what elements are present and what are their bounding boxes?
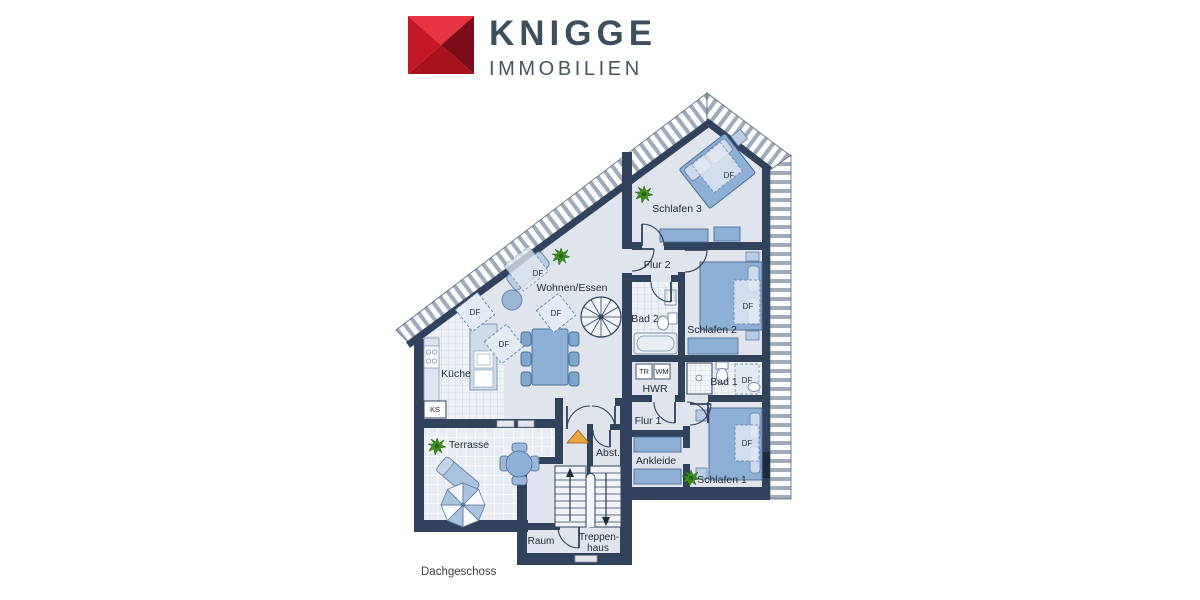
terrace-table — [506, 451, 532, 477]
nightstand — [746, 331, 759, 340]
dining-set — [521, 329, 579, 386]
wardrobe — [688, 338, 738, 354]
room-label-raum: Raum — [528, 536, 555, 547]
sideboard — [714, 227, 740, 241]
room-label-wohnen-essen: Wohnen/Essen — [536, 282, 607, 294]
page: { "logo": { "brand": "KNIGGE", "sub": "I… — [0, 0, 1200, 600]
room-label-schlafen3: Schlafen 3 — [652, 203, 702, 215]
room-label-flur2: Flur 2 — [644, 259, 671, 271]
room-label-treppenhaus-2: haus — [587, 543, 609, 554]
room-label-abstellraum: Abst. — [596, 447, 620, 459]
stove — [424, 346, 439, 368]
floor-caption: Dachgeschoss — [421, 566, 496, 578]
staircase — [555, 466, 621, 527]
df-label: DF — [742, 439, 753, 448]
room-label-hwr: HWR — [642, 383, 667, 395]
wall-annotation — [762, 452, 770, 478]
shower — [687, 363, 712, 394]
sideboard — [660, 229, 708, 242]
room-label-flur1: Flur 1 — [635, 415, 662, 427]
floor-plan: Schlafen 3 Flur 2 Wohnen/Essen Bad 2 Sch… — [0, 0, 1200, 600]
side-table — [502, 290, 522, 310]
window — [497, 421, 514, 428]
df-label: DF — [743, 302, 754, 311]
df-label: DF — [470, 308, 481, 317]
room-label-bad2: Bad 2 — [631, 313, 659, 325]
wardrobe — [634, 469, 681, 484]
df-label: DF — [724, 171, 735, 180]
dining-table — [532, 329, 568, 385]
room-label-ankleide: Ankleide — [636, 455, 676, 467]
room-label-kueche: Küche — [441, 368, 471, 380]
window — [518, 421, 534, 428]
room-label-schlafen2: Schlafen 2 — [687, 324, 737, 336]
df-label: DF — [533, 269, 544, 278]
toilet-icon — [716, 362, 728, 369]
umbrella-icon — [441, 483, 485, 527]
df-label: DF — [499, 340, 510, 349]
room-label-treppenhaus-1: Treppen- — [579, 532, 619, 543]
df-label: DF — [551, 309, 562, 318]
fridge-label: KS — [430, 405, 440, 414]
room-label-terrasse: Terrasse — [449, 439, 489, 451]
room-label-bad1: Bad 1 — [710, 376, 738, 388]
washer-label: WM — [655, 367, 668, 376]
window — [575, 556, 597, 563]
wardrobe — [634, 437, 681, 452]
toilet-icon — [668, 313, 677, 324]
dryer-label: TR — [639, 367, 650, 376]
df-label: DF — [742, 376, 753, 385]
room-label-schlafen1: Schlafen 1 — [697, 474, 747, 486]
nightstand — [746, 252, 759, 261]
spiral-stairs — [581, 297, 621, 337]
